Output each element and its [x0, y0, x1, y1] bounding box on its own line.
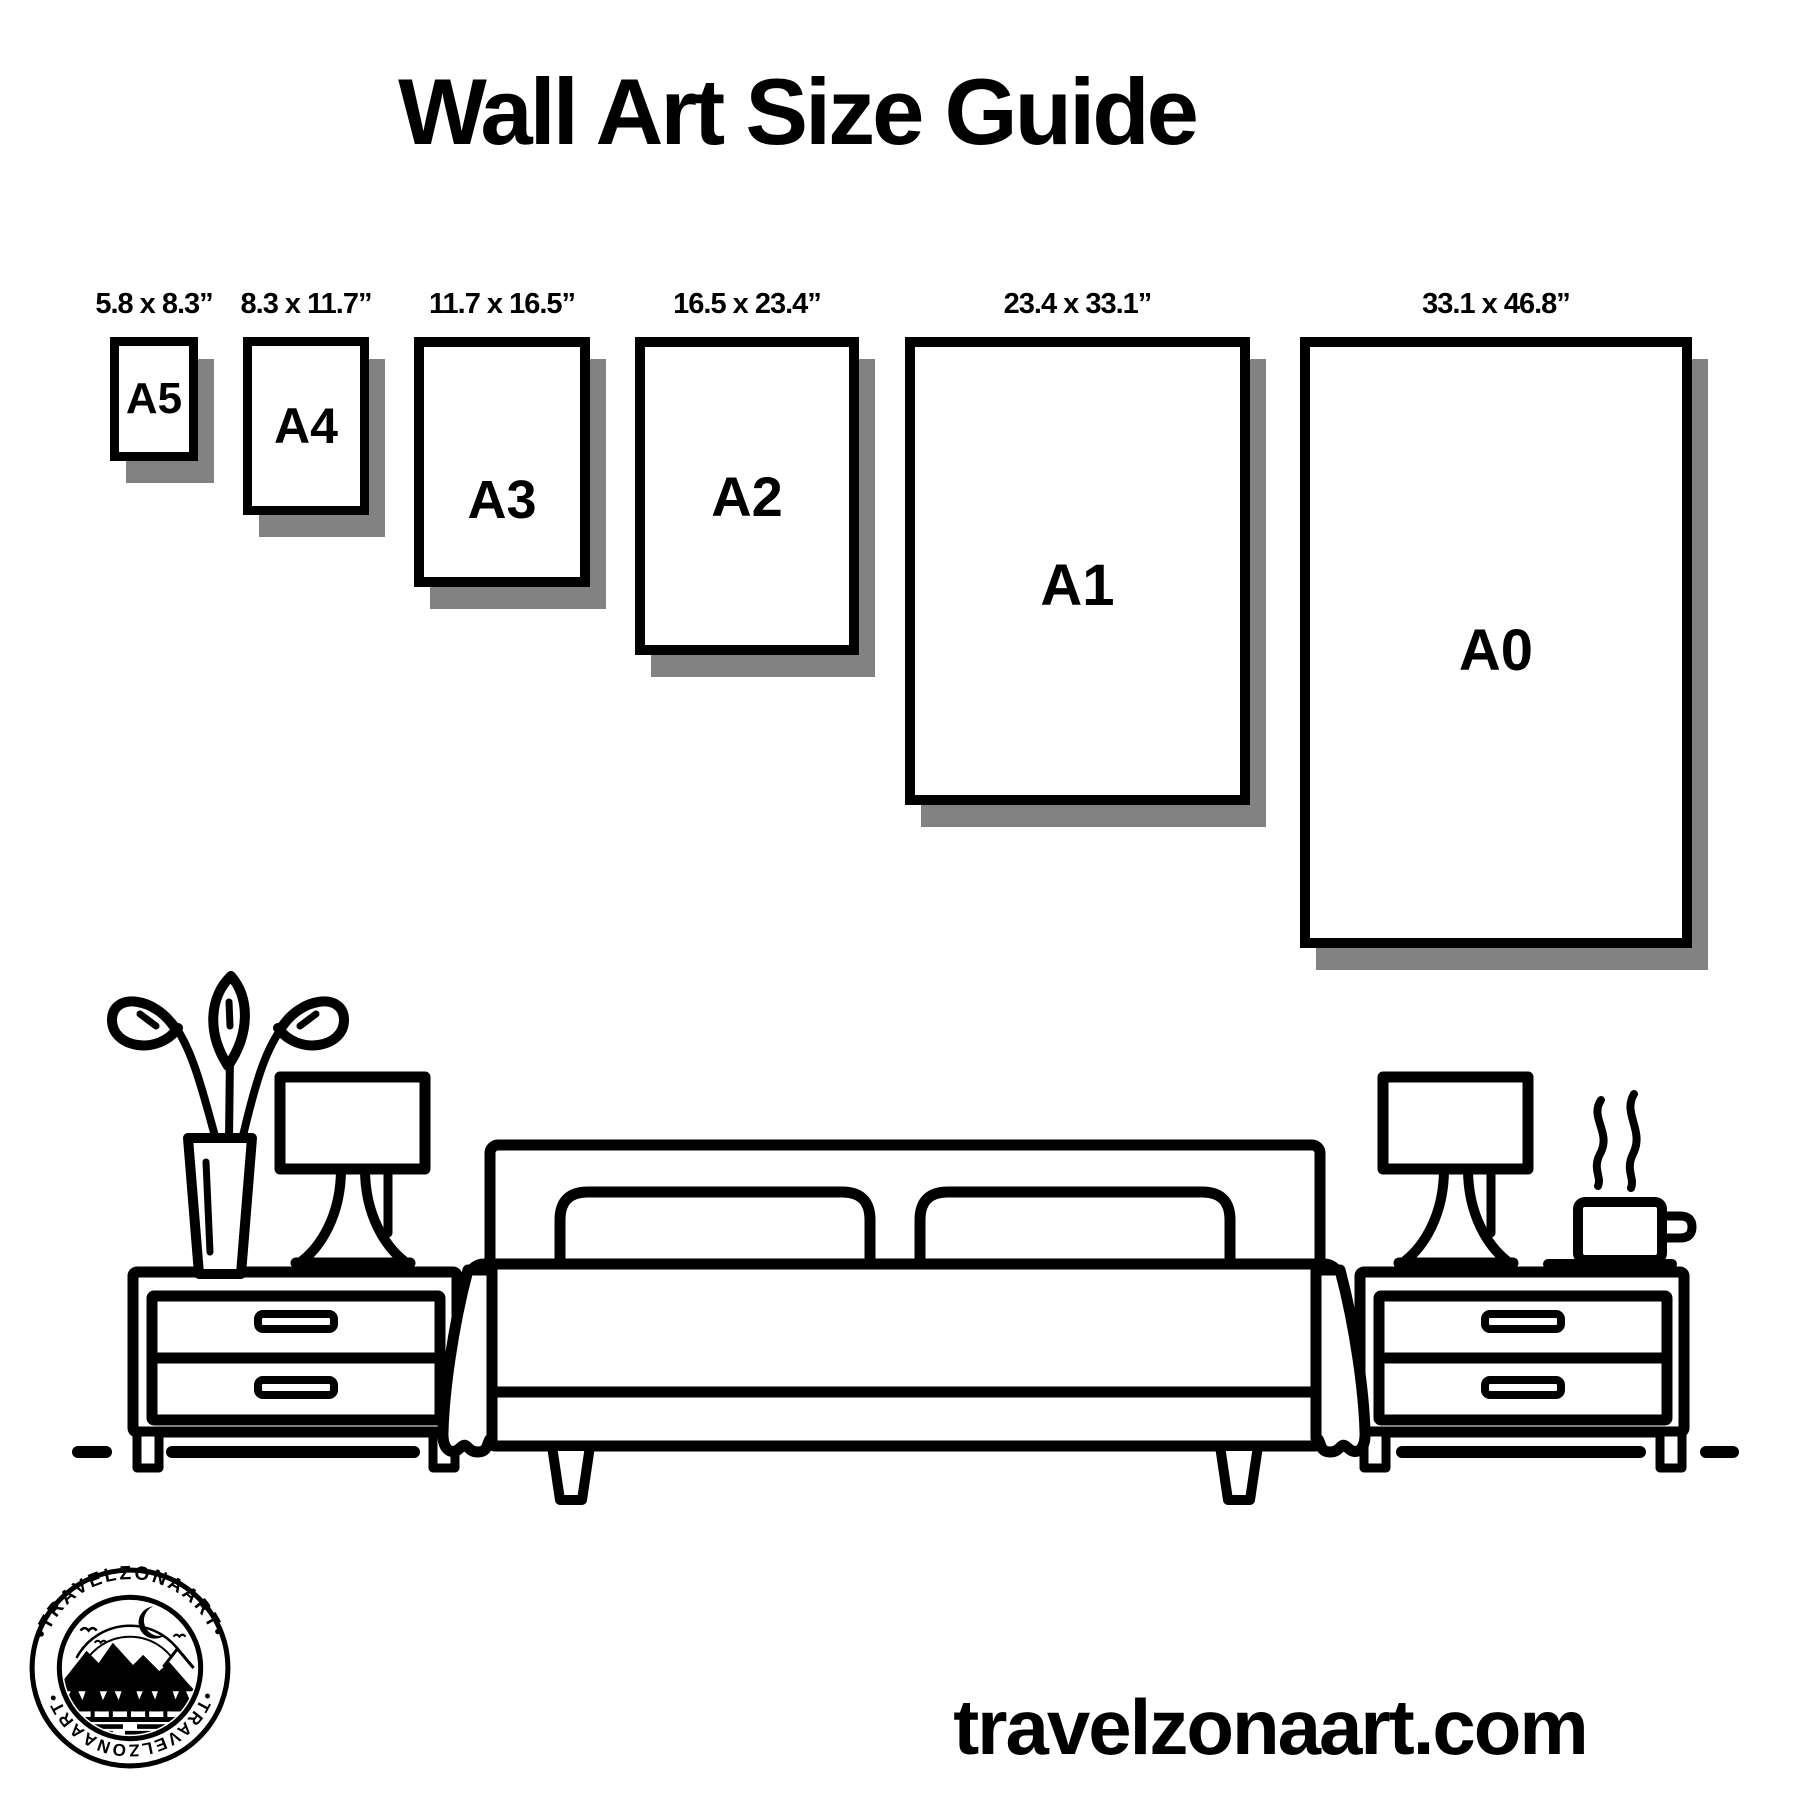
- nightstand-icon: [133, 1272, 457, 1468]
- table-lamp-icon: [1383, 1077, 1528, 1263]
- size-frame-a1: 23.4 x 33.1” A1: [905, 337, 1250, 805]
- size-frame-a3: 11.7 x 16.5” A3: [414, 337, 590, 587]
- bird-icon: [173, 1635, 185, 1637]
- logo-brand-text-top: •TRAVELZONAART•: [31, 1563, 229, 1641]
- nightstand-icon: [1360, 1272, 1684, 1468]
- bedroom-illustration: [0, 850, 1800, 1550]
- drawer-handle-icon: [258, 1380, 334, 1395]
- size-frame-a4: 8.3 x 11.7” A4: [243, 337, 369, 515]
- size-code-label: A5: [126, 374, 182, 424]
- size-dimensions-label: 23.4 x 33.1”: [1004, 288, 1152, 321]
- table-lamp-icon: [280, 1077, 425, 1263]
- size-frame-a2: 16.5 x 23.4” A2: [635, 337, 859, 655]
- paper-a2: A2: [635, 337, 859, 655]
- bird-icon: [81, 1628, 97, 1631]
- paper-a3: A3: [414, 337, 590, 587]
- size-code-label: A1: [1040, 552, 1114, 619]
- size-dimensions-label: 8.3 x 11.7”: [241, 288, 372, 321]
- paper-a1: A1: [905, 337, 1250, 805]
- page-title: Wall Art Size Guide: [0, 58, 1594, 166]
- size-code-label: A3: [467, 469, 536, 531]
- vase-icon: [188, 1138, 252, 1274]
- size-dimensions-label: 11.7 x 16.5”: [429, 288, 575, 321]
- drawer-handle-icon: [258, 1314, 334, 1329]
- size-frame-a5: 5.8 x 8.3” A5: [110, 337, 198, 461]
- steam-icon: [1597, 1100, 1604, 1186]
- steam-icon: [1630, 1094, 1637, 1188]
- paper-a4: A4: [243, 337, 369, 515]
- wall-art-size-guide-poster: Wall Art Size Guide 5.8 x 8.3” A5 8.3 x …: [0, 0, 1800, 1800]
- paper-a5: A5: [110, 337, 198, 461]
- size-code-label: A2: [711, 464, 783, 529]
- brand-logo: •TRAVELZONAART• •TRAVELZONAART•: [24, 1562, 236, 1774]
- drawer-handle-icon: [1485, 1380, 1561, 1395]
- size-code-label: A0: [1459, 617, 1533, 684]
- coffee-cup-icon: [1548, 1094, 1692, 1264]
- drawer-handle-icon: [1485, 1314, 1561, 1329]
- website-url: travelzonaart.com: [953, 1682, 1587, 1773]
- size-code-label: A4: [274, 397, 338, 455]
- size-dimensions-label: 16.5 x 23.4”: [673, 288, 821, 321]
- size-dimensions-label: 33.1 x 46.8”: [1422, 288, 1570, 321]
- size-dimensions-label: 5.8 x 8.3”: [95, 288, 212, 321]
- bed-icon: [468, 1145, 1340, 1500]
